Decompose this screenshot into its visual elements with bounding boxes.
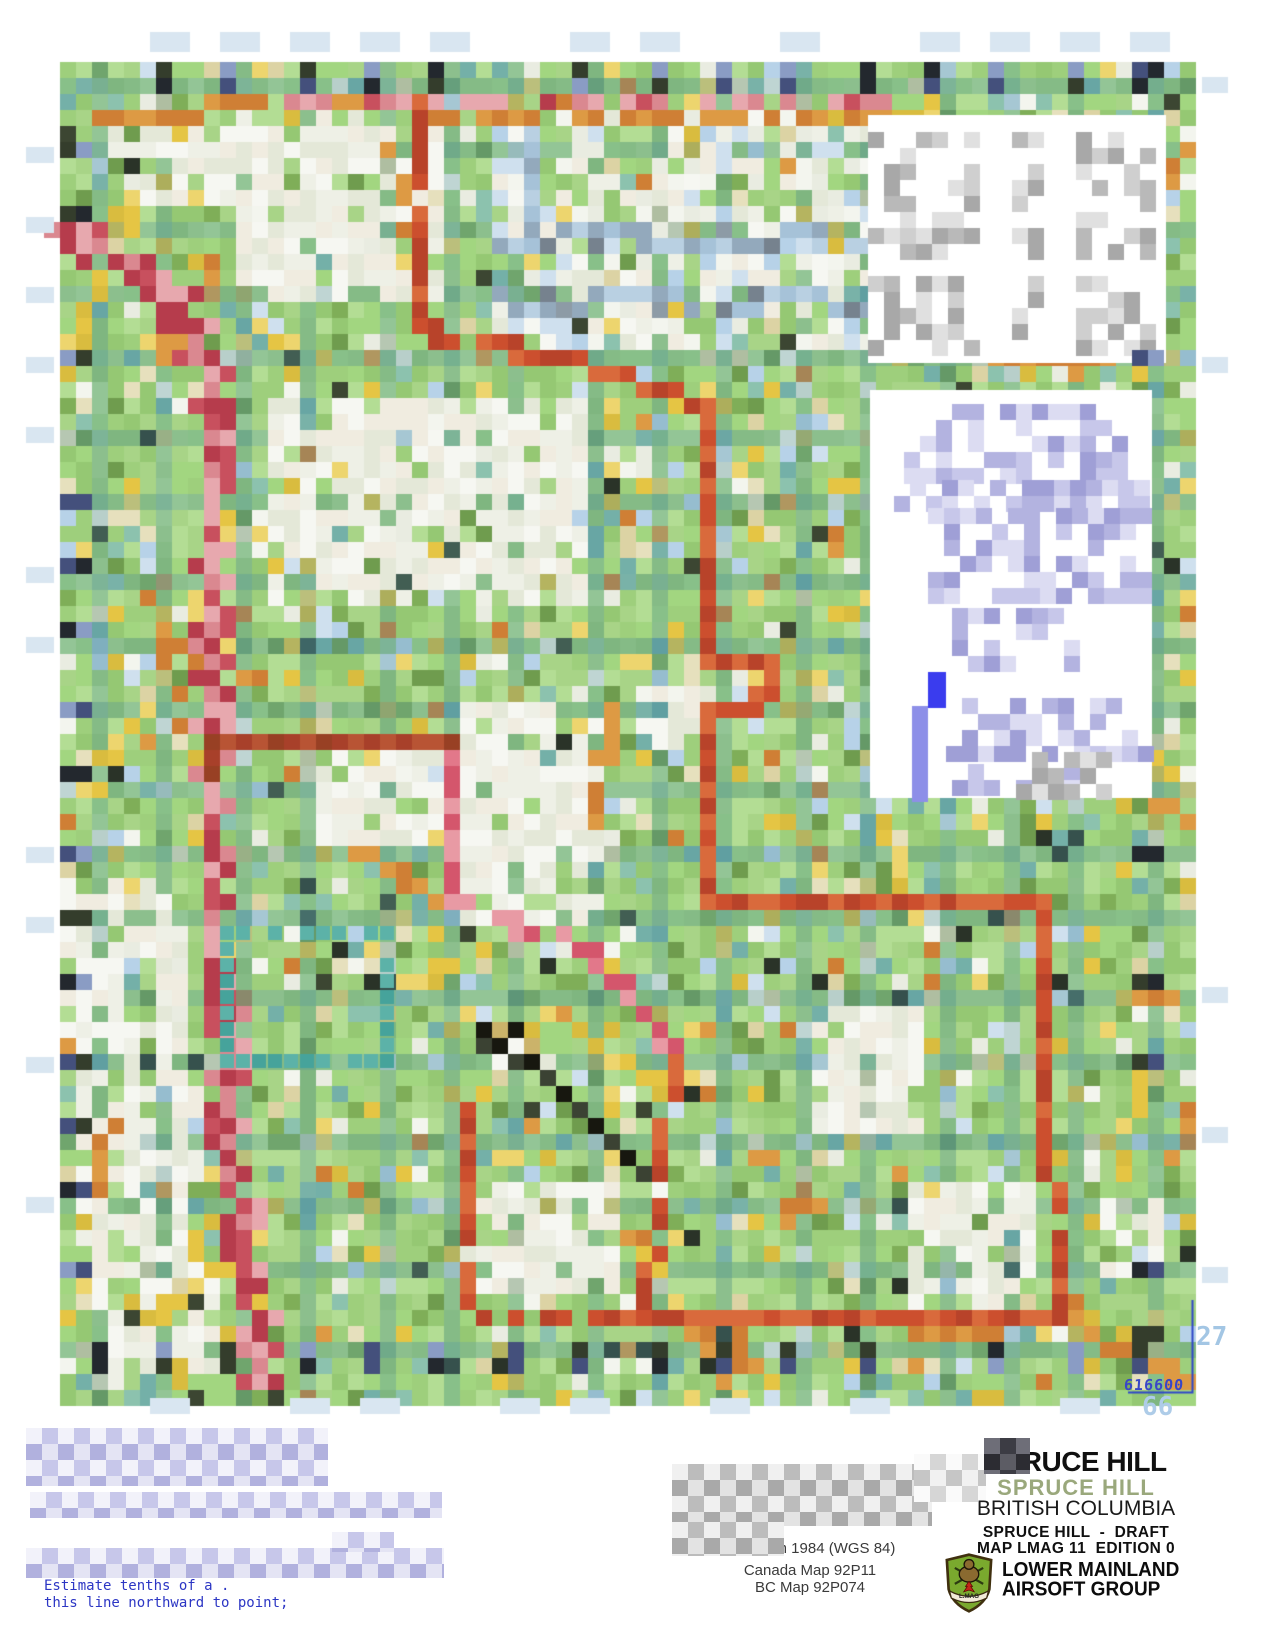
margin-instruction-line2: this line northward to point; bbox=[44, 1595, 288, 1611]
map-region: BRITISH COLUMBIA bbox=[930, 1497, 1222, 1521]
pixelated-text-block-center bbox=[672, 1464, 932, 1526]
lmag-shield-icon: L.MAG bbox=[942, 1552, 996, 1614]
pixelated-text-block-left-4 bbox=[332, 1532, 394, 1552]
pixelated-text-block-center-overlap bbox=[672, 1522, 784, 1556]
source-note-bc: BC Map 92P074 bbox=[690, 1579, 930, 1596]
pixelated-text-block-left-1 bbox=[26, 1428, 328, 1486]
grid-easting-label: 27 bbox=[1196, 1322, 1227, 1352]
pixelated-block-title-dark bbox=[984, 1438, 1030, 1474]
pixelated-text-block-left-3 bbox=[26, 1548, 444, 1578]
logo-banner-text: L.MAG bbox=[959, 1593, 979, 1600]
grid-northing-label: 66 bbox=[1142, 1392, 1173, 1422]
pixelated-text-block-left-2 bbox=[30, 1492, 442, 1518]
organization-line2: AIRSOFT GROUP bbox=[1002, 1580, 1179, 1599]
lmag-logo: L.MAG bbox=[942, 1552, 996, 1619]
organization-name: LOWER MAINLAND AIRSOFT GROUP bbox=[1002, 1561, 1179, 1600]
map-title-primary: SPRUCE HILL bbox=[930, 1446, 1222, 1478]
source-note-canada: Canada Map 92P11 bbox=[690, 1562, 930, 1579]
map-sheet-page: 27 616600 66 SPRUCE HILL SPRUCE HILL BRI… bbox=[0, 0, 1275, 1650]
margin-instruction-line1: Estimate tenths of a . bbox=[44, 1578, 229, 1594]
topographic-map-canvas bbox=[0, 0, 1275, 1650]
